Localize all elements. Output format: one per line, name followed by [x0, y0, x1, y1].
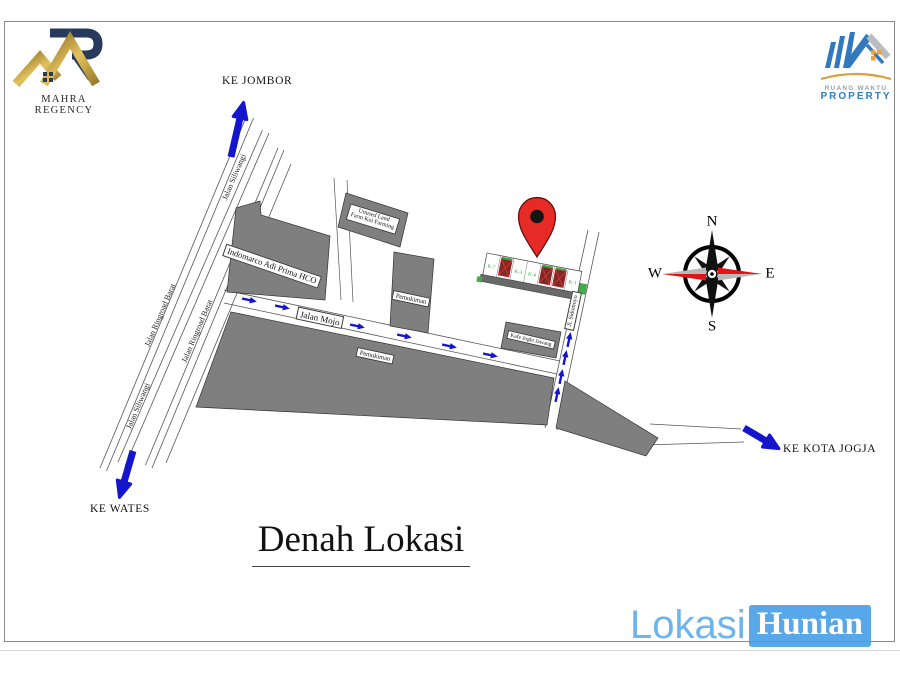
buildings [196, 193, 658, 456]
ke-wates-label: KE WATES [90, 503, 150, 515]
flow-arrow-icon [441, 341, 457, 350]
page-title: Denah Lokasi [246, 518, 476, 567]
property-text: PROPERTY [816, 91, 896, 102]
map-graphics: K-7 K-3 K-4 K-1 [0, 0, 900, 675]
compass-north-label: N [707, 214, 718, 231]
lokasi-hunian-watermark: Lokasi Hunian [630, 603, 871, 648]
mahra-logo-text: MAHRA REGENCY [12, 94, 116, 116]
arrow-ke-jombor-icon [231, 102, 247, 157]
ke-jombor-label: KE JOMBOR [222, 75, 292, 87]
building-pemukiman-wedge [556, 381, 658, 456]
arrow-ke-jogja-icon [744, 428, 779, 449]
compass-south-label: S [708, 319, 716, 336]
compass-east-label: E [765, 266, 774, 283]
watermark-hunian-badge: Hunian [749, 605, 871, 647]
jogja-road-lines [645, 424, 744, 445]
flow-arrow-icon [349, 321, 365, 330]
mahra-regency-logo: MAHRA REGENCY [12, 26, 116, 116]
flow-arrow-icon [556, 369, 565, 385]
mahra-monogram-icon [12, 26, 116, 88]
location-map-page: K-7 K-3 K-4 K-1 [0, 0, 900, 675]
site-green-area [476, 276, 482, 282]
page-title-text: Denah Lokasi [252, 518, 471, 567]
ruang-waktu-property-logo: RUANG WAKTU PROPERTY [816, 24, 896, 102]
compass-rose-icon [662, 230, 762, 318]
location-pin-icon [519, 198, 556, 258]
ke-kota-jogja-label: KE KOTA JOGJA [783, 443, 876, 455]
bottom-divider-line [0, 650, 900, 651]
building-pemukiman-south [196, 312, 554, 425]
ruang-waktu-house-icon [816, 24, 896, 82]
watermark-lokasi-text: Lokasi [630, 603, 746, 648]
flow-arrow-icon [396, 331, 412, 340]
compass-west-label: W [648, 266, 662, 283]
